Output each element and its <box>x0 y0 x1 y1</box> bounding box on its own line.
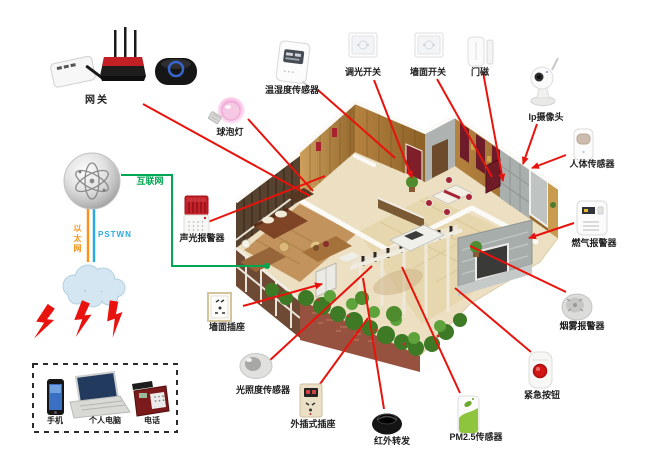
wifi-router-icon <box>100 27 146 81</box>
smart-hub-icon <box>155 58 197 85</box>
emergency-button-icon <box>529 352 552 388</box>
light-sensor-label: 光照度传感器 <box>236 386 290 395</box>
smoke-alarm-label: 烟雾报警器 <box>559 322 604 331</box>
internet-globe-icon <box>64 153 120 209</box>
dimmer-switch-label: 调光开关 <box>345 68 381 77</box>
bulb-icon <box>208 97 245 125</box>
internet-label: 互联网 <box>136 177 163 186</box>
internet-endpoint-dot <box>264 263 270 269</box>
ethernet-label: 以太网 <box>73 224 81 254</box>
pc-label: 个人电脑 <box>89 417 121 425</box>
wall-switch-label: 墙面开关 <box>410 68 446 77</box>
dimmer-switch-icon <box>349 33 377 57</box>
sound-light-alarm-icon <box>184 196 209 236</box>
ir-forwarder-label: 红外转发 <box>374 437 410 446</box>
pm25-sensor-label: PM2.5传感器 <box>449 433 502 442</box>
wall-switch-icon <box>415 33 443 57</box>
ir-forwarder-icon <box>372 414 402 435</box>
temp-humidity-sensor-icon <box>275 40 314 87</box>
human-sensor-icon <box>574 129 593 160</box>
wall-socket-icon <box>208 293 231 321</box>
plug-socket-icon <box>300 384 322 417</box>
door-magnet-label: 门磁 <box>471 68 489 77</box>
phone-label: 手机 <box>47 417 63 425</box>
gateway-label: 网关 <box>85 96 109 106</box>
laptop-icon <box>70 372 130 418</box>
pm25-sensor-icon <box>458 396 479 433</box>
gas-alarm-icon <box>577 201 607 235</box>
lightning-icon <box>32 302 57 342</box>
telephone-label: 电话 <box>144 417 160 425</box>
smart-home-diagram: 网关 球泡灯 温湿度传感器 调光开关 墙面开关 门磁 Ip摄像头 人体传感器 燃… <box>0 0 654 464</box>
line-ip-camera <box>523 124 537 164</box>
smoke-alarm-icon <box>562 294 592 320</box>
gateway-modem-icon <box>50 54 104 90</box>
bulb-label: 球泡灯 <box>216 128 243 137</box>
lightning-icons <box>32 298 127 342</box>
sound-light-alarm-label: 声光报警器 <box>179 234 224 243</box>
door-magnet-icon <box>468 37 493 66</box>
ip-camera-icon <box>531 58 558 106</box>
cloud-icon <box>63 265 125 307</box>
human-sensor-label: 人体传感器 <box>569 160 614 169</box>
temp-humidity-label: 温湿度传感器 <box>265 86 319 95</box>
line-human-sensor <box>532 155 566 168</box>
telephone-icon <box>132 381 169 416</box>
light-sensor-icon <box>240 354 272 379</box>
smartphone-icon <box>47 379 64 415</box>
ip-camera-label: Ip摄像头 <box>529 113 564 122</box>
wall-socket-label: 墙面插座 <box>209 323 245 332</box>
gas-alarm-label: 燃气报警器 <box>571 239 616 248</box>
pstn-label: PSTWN <box>98 231 132 239</box>
plug-socket-label: 外插式插座 <box>290 420 335 429</box>
emergency-button-label: 紧急按钮 <box>524 391 560 400</box>
